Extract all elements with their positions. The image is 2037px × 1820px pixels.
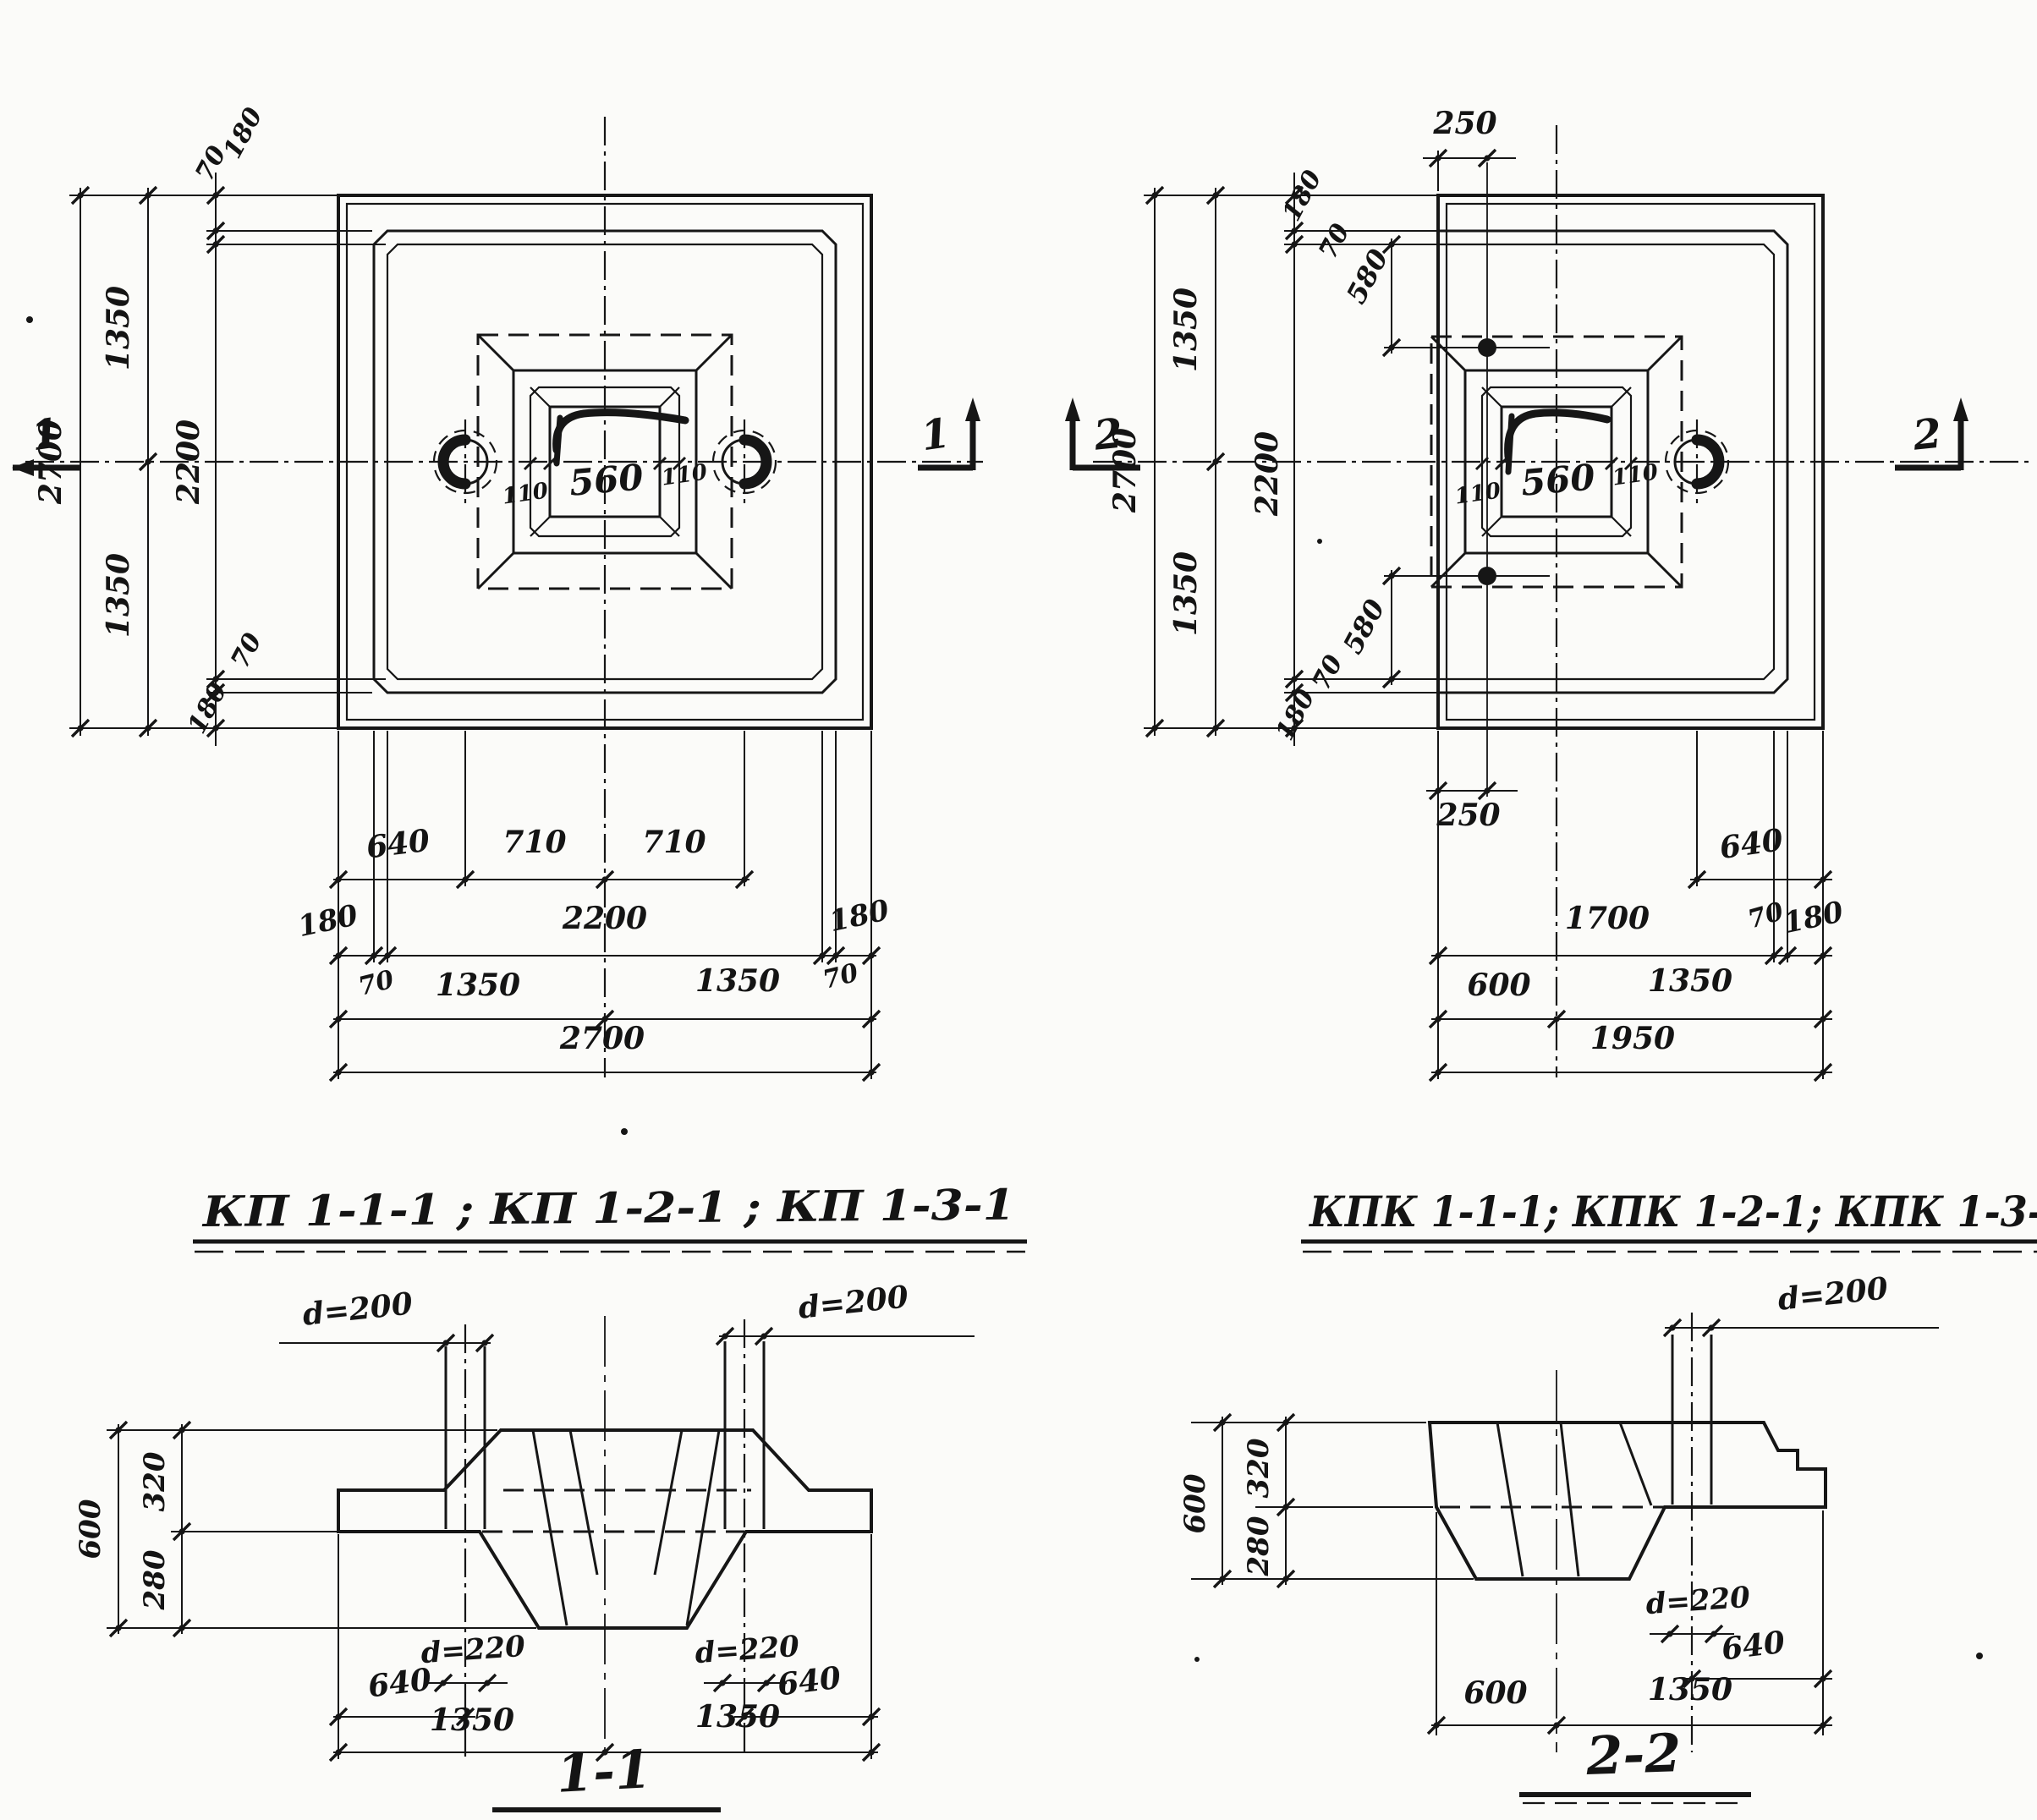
section-title: 1-1 — [555, 1738, 653, 1805]
dim-label: 250 — [1432, 106, 1496, 141]
section-arrow-up — [1065, 397, 1080, 421]
plan-title: КП 1-1-1 ; КП 1-2-1 ; КП 1-3-1 — [200, 1180, 1015, 1236]
dim-label: 640 — [1720, 1625, 1787, 1668]
socket-wall — [1497, 1423, 1523, 1576]
dim-label: 320 — [138, 1451, 172, 1511]
pyramid-edge — [478, 553, 513, 589]
pyramid-edge — [1648, 553, 1682, 587]
dim-label: 560 — [568, 456, 645, 503]
ink-scribble — [557, 418, 560, 463]
pyramid-edge — [478, 335, 513, 370]
dim-label: 250 — [1436, 798, 1500, 833]
dim-label: 70 — [820, 958, 861, 995]
dim-label: 70 — [1306, 650, 1349, 695]
socket-corner — [1611, 387, 1631, 407]
scan-speck — [1317, 539, 1322, 544]
section-title: 2-2 — [1584, 1722, 1682, 1787]
section-view-1-1: d=200 d=200 600 320 280 d=220 d=220 — [74, 1279, 975, 1810]
scan-speck — [1976, 1653, 1983, 1659]
socket-corner — [660, 517, 679, 536]
dim-label: 110 — [501, 478, 550, 509]
dim-label: 2700 — [559, 1021, 645, 1056]
dim-label: d=200 — [797, 1279, 910, 1325]
blueprint-page: 1 1 2700 1350 1350 2200 180 70 70 180 11… — [0, 0, 2037, 1820]
dim-label: 180 — [182, 678, 233, 739]
dim-label: 640 — [366, 1662, 434, 1705]
socket-corner — [660, 387, 679, 407]
dim-label: 180 — [1270, 685, 1320, 746]
section-arrow-left — [12, 459, 34, 476]
socket-wall — [655, 1430, 682, 1575]
section-view-2-2: d=200 600 320 280 d=220 640 600 1350 2 — [1178, 1270, 1939, 1803]
dim-label: d=220 — [1644, 1581, 1751, 1622]
dim-label: 70 — [1313, 219, 1356, 264]
dim-label: d=220 — [420, 1630, 526, 1671]
drawing-canvas: 1 1 2700 1350 1350 2200 180 70 70 180 11… — [0, 0, 2037, 1820]
dim-label: 70 — [1744, 896, 1787, 935]
dim-label: 320 — [1242, 1438, 1276, 1498]
scan-speck — [1194, 1657, 1200, 1662]
scan-speck — [621, 1128, 628, 1135]
dim-label: 1350 — [1168, 288, 1204, 372]
dim-label: 110 — [1611, 459, 1660, 491]
socket-corner — [1611, 517, 1631, 536]
ink-scribble — [1508, 416, 1512, 472]
dim-label: 2200 — [562, 901, 647, 936]
dim-label: 1950 — [1590, 1021, 1675, 1056]
dim-label: 600 — [1463, 1675, 1527, 1711]
socket-wall — [570, 1430, 597, 1575]
dim-label: 2700 — [1107, 428, 1143, 513]
dim-label: 600 — [1178, 1473, 1212, 1533]
socket-wall — [1620, 1423, 1651, 1505]
dim-label: 600 — [74, 1499, 107, 1559]
dim-label: 180 — [1781, 895, 1847, 940]
dim-label: 70 — [355, 965, 397, 1002]
dim-label: 1350 — [101, 286, 136, 370]
dim-label: 1350 — [1648, 1672, 1732, 1708]
dim-label: 280 — [138, 1549, 172, 1610]
dim-label: 1350 — [101, 553, 136, 638]
dim-label: 1350 — [1168, 551, 1204, 636]
dim-label: 640 — [365, 823, 432, 866]
dim-label: 710 — [502, 825, 566, 860]
dim-label: 580 — [1340, 244, 1395, 309]
socket-corner — [1482, 517, 1502, 536]
dim-label: 1350 — [1648, 963, 1732, 999]
socket-wall — [1561, 1423, 1579, 1576]
socket-wall — [533, 1430, 567, 1625]
dim-label: 1350 — [695, 1699, 780, 1735]
dim-label: 1700 — [1565, 901, 1650, 936]
section-arrow-up — [1953, 397, 1968, 421]
dim-label: 710 — [642, 825, 706, 860]
section-marker-label: 2 — [1910, 409, 1944, 459]
section-arrow-up — [965, 397, 980, 421]
dim-label: 110 — [1453, 478, 1502, 509]
section-marker-label: 1 — [918, 409, 953, 460]
dim-label: 580 — [1337, 594, 1392, 659]
pyramid-edge — [696, 335, 732, 370]
scan-speck — [26, 316, 33, 323]
dim-label: d=200 — [1776, 1270, 1890, 1317]
socket-corner — [530, 517, 550, 536]
ink-scribble — [557, 413, 685, 450]
dim-label: 1350 — [436, 968, 520, 1003]
socket-corner — [530, 387, 550, 407]
plan-title: КПК 1-1-1; КПК 1-2-1; КПК 1-3-1 — [1308, 1187, 2037, 1236]
socket-wall — [687, 1430, 719, 1625]
dim-label: 180 — [295, 898, 361, 944]
dim-label: 2700 — [33, 419, 69, 505]
dim-label: 70 — [225, 628, 268, 673]
plan-view-kp: 1 1 2700 1350 1350 2200 180 70 70 180 11… — [12, 103, 1027, 1252]
dim-label: 600 — [1467, 968, 1530, 1003]
ink-scribble — [1508, 413, 1607, 457]
dim-label: 280 — [1242, 1516, 1276, 1576]
pyramid-edge — [696, 553, 732, 589]
dim-label: d=200 — [301, 1286, 415, 1332]
dim-label: 640 — [1717, 822, 1785, 866]
dim-label: 1350 — [430, 1702, 514, 1738]
dim-label: 640 — [776, 1660, 843, 1703]
plan-view-kpk: 2 2 250 2700 1350 1350 2200 180 70 580 — [1065, 106, 2037, 1252]
pyramid-edge — [1648, 337, 1682, 370]
dim-label: 2200 — [1249, 431, 1285, 517]
dim-label: 110 — [660, 459, 709, 491]
dim-label: 2200 — [171, 419, 206, 505]
socket-corner — [1482, 387, 1502, 407]
dim-label: 1350 — [695, 963, 780, 999]
dim-label: 560 — [1519, 456, 1597, 503]
dim-label: d=220 — [694, 1630, 800, 1671]
